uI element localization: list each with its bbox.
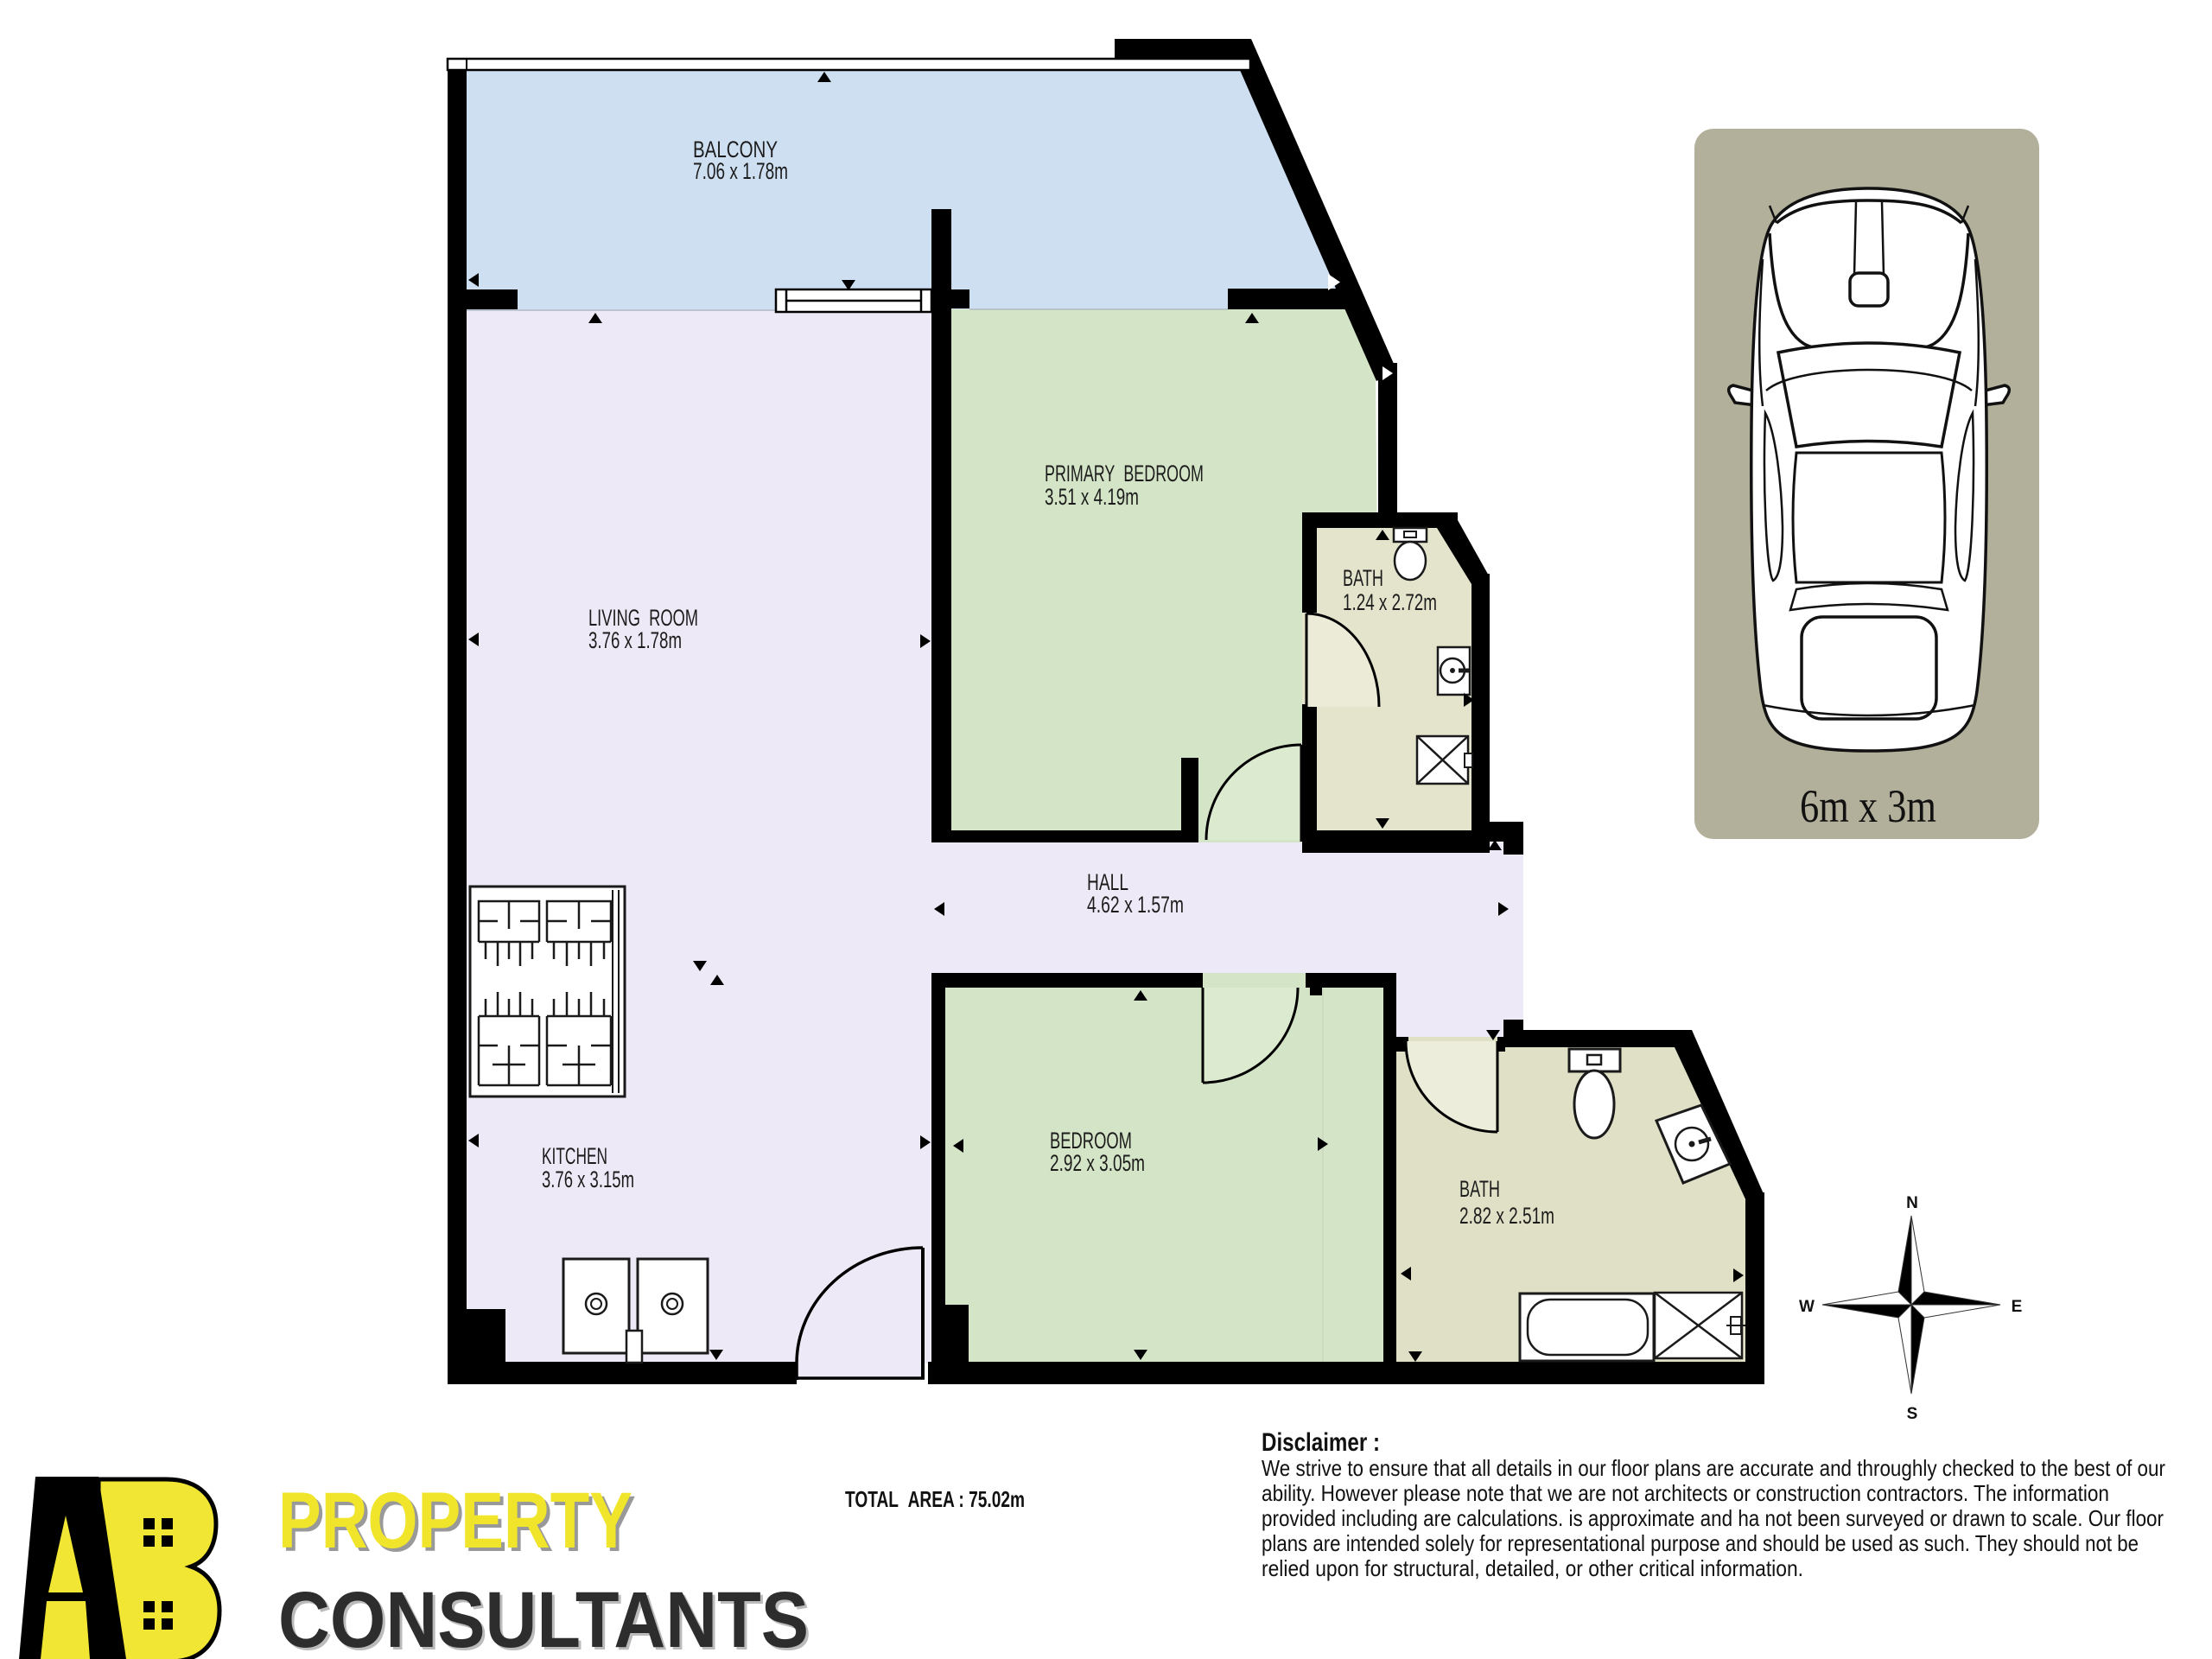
svg-text:E: E	[2012, 1298, 2023, 1316]
svg-text:PROPERTY: PROPERTY	[278, 1477, 632, 1565]
svg-text:4.62 x 1.57m: 4.62 x 1.57m	[1087, 892, 1184, 918]
svg-text:2.92 x 3.05m: 2.92 x 3.05m	[1050, 1150, 1145, 1176]
svg-text:ability. However please note t: ability. However please note that we are…	[1262, 1480, 2109, 1506]
svg-text:3.76 x 1.78m: 3.76 x 1.78m	[588, 627, 682, 653]
svg-text:W: W	[1799, 1298, 1815, 1316]
svg-text:BATH: BATH	[1343, 565, 1383, 591]
svg-text:6m x 3m: 6m x 3m	[1800, 780, 1936, 832]
svg-text:3.51 x 4.19m: 3.51 x 4.19m	[1045, 484, 1139, 510]
svg-text:provided including are calcula: provided including are calculations. is …	[1262, 1505, 2164, 1531]
svg-text:We strive to ensure that all d: We strive to ensure that all details in …	[1262, 1455, 2165, 1481]
svg-text:relied upon for structural, de: relied upon for structural, detailed, or…	[1262, 1555, 1803, 1581]
svg-text:TOTAL AREA : 75.02m: TOTAL AREA : 75.02m	[845, 1486, 1025, 1512]
svg-text:3.76 x 3.15m: 3.76 x 3.15m	[542, 1166, 634, 1192]
svg-text:CONSULTANTS: CONSULTANTS	[278, 1576, 809, 1659]
svg-text:2.82 x 2.51m: 2.82 x 2.51m	[1459, 1203, 1554, 1229]
svg-text:BATH: BATH	[1459, 1176, 1500, 1202]
svg-text:plans are intended solely for: plans are intended solely for representa…	[1262, 1530, 2139, 1556]
svg-text:Disclaimer :: Disclaimer :	[1262, 1428, 1380, 1457]
svg-text:KITCHEN: KITCHEN	[542, 1143, 607, 1169]
svg-text:PRIMARY BEDROOM: PRIMARY BEDROOM	[1045, 461, 1204, 486]
svg-text:1.24 x 2.72m: 1.24 x 2.72m	[1343, 589, 1437, 615]
svg-text:S: S	[1907, 1405, 1918, 1423]
svg-text:N: N	[1906, 1194, 1918, 1212]
svg-text:7.06 x 1.78m: 7.06 x 1.78m	[693, 158, 788, 184]
